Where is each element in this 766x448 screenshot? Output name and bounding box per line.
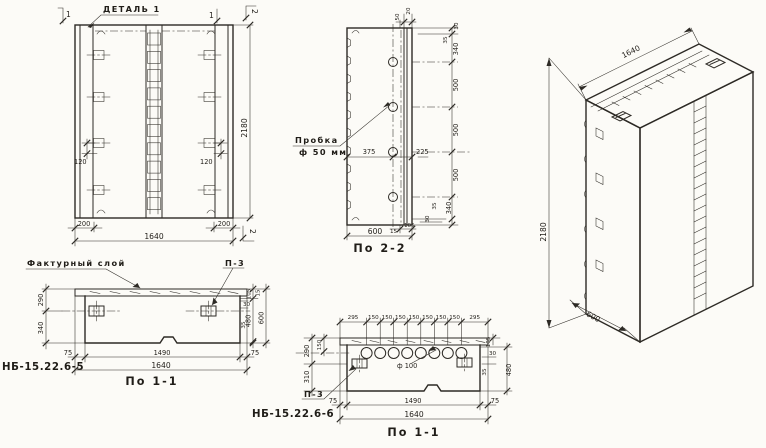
sec5-plates bbox=[62, 301, 250, 321]
sec5-mark: НБ-15.22.6-5 bbox=[2, 362, 84, 373]
plug-label-line1: Пробка bbox=[295, 135, 339, 145]
sec5-width: 1640 bbox=[151, 361, 170, 370]
sec5-dim-15: 15 bbox=[256, 289, 262, 297]
section-2-2-outline bbox=[347, 24, 412, 229]
front-panel-outline bbox=[75, 25, 233, 218]
chain-340-top: 340 bbox=[452, 43, 460, 56]
iso-box bbox=[586, 44, 753, 342]
chain-30-bottom: 30 bbox=[425, 215, 431, 223]
dim-front-height: 2180 bbox=[240, 118, 249, 137]
dim-loop-left: 120 bbox=[74, 158, 87, 166]
sec6-chain-8: 295 bbox=[469, 315, 480, 321]
sec6-chain-5: 150 bbox=[422, 315, 433, 321]
sec5-caption: По 1-1 bbox=[125, 375, 178, 388]
facing-layer-label: Фактурный слой bbox=[27, 258, 126, 268]
sec6-inner: 1490 bbox=[405, 397, 422, 405]
plug-label-line2: ф 50 мм bbox=[299, 147, 347, 157]
sec6-chain-1: 150 bbox=[368, 315, 379, 321]
chain-500-a: 500 bbox=[452, 79, 460, 92]
sec6-mark: НБ-15.22.6-6 bbox=[252, 409, 334, 420]
sec6-dim-310: 310 bbox=[303, 371, 311, 384]
dim-section-width: 600 bbox=[368, 227, 383, 236]
dim-bottom-a: 15 bbox=[390, 229, 398, 235]
sec5-dim-290: 290 bbox=[37, 294, 45, 307]
sec6-hole-label: ф 100 bbox=[397, 362, 417, 370]
sec6-width: 1640 bbox=[404, 410, 423, 419]
sec5-edge-right: 75 bbox=[251, 349, 259, 357]
sec5-dim-340: 340 bbox=[37, 322, 45, 335]
sec6-chain-2: 150 bbox=[382, 315, 393, 321]
section-2-2-caption: По 2-2 bbox=[353, 242, 406, 255]
sec6-chain-0: 295 bbox=[348, 315, 359, 321]
chain-340-bottom: 340 bbox=[445, 202, 453, 215]
sec6-top-chain: 295 150 150 150 150 150 150 150 295 bbox=[337, 315, 491, 345]
sec6-dim-150: 150 bbox=[317, 339, 323, 350]
iso-dim-height: 2180 bbox=[539, 222, 548, 241]
section-flag-1-right: 1 bbox=[209, 11, 214, 20]
iso-dim-depth: 600 bbox=[585, 309, 602, 324]
section-1-1-left-view: Фактурный слой П-3 290 340 105 15 480 60… bbox=[2, 258, 270, 388]
dim-hole-left: 375 bbox=[363, 148, 376, 156]
dim-top-a: 50 bbox=[395, 13, 401, 21]
sec5-bottom-dims: 75 1490 75 1640 НБ-15.22.6-5 По 1-1 bbox=[2, 296, 259, 388]
dim-front-width: 1640 bbox=[144, 232, 163, 241]
sec6-chain-3: 150 bbox=[395, 315, 406, 321]
drawing-canvas: 120 120 ДЕТАЛЬ 1 1 1 2 2 2180 200 200 16… bbox=[0, 0, 766, 448]
iso-side-holes bbox=[585, 120, 604, 300]
sec6-edge-right: 75 bbox=[491, 397, 499, 405]
sec5-edge-left: 75 bbox=[64, 349, 72, 357]
sec6-dim-105: 105 bbox=[486, 336, 492, 347]
sec6-plate-label: П-3 bbox=[304, 389, 324, 399]
plug-callout: Пробка ф 50 мм bbox=[293, 102, 390, 157]
sec5-right-dims: 105 15 480 600 30 35 bbox=[240, 284, 270, 348]
section-2-2-right-chain: 30 35 340 500 500 500 340 35 30 bbox=[412, 22, 470, 228]
section-1-1-right-view: 295 150 150 150 150 150 150 150 295 ф 10… bbox=[252, 315, 513, 439]
sec5-plate-label: П-3 bbox=[225, 258, 245, 268]
dim-loop-right: 120 bbox=[200, 158, 213, 166]
sec6-dim-30: 30 bbox=[489, 351, 497, 357]
dim-top-b: 20 bbox=[406, 7, 412, 15]
sec6-chain-6: 150 bbox=[436, 315, 447, 321]
section-2-2-bottom-dims: 15 105 600 По 2-2 bbox=[344, 223, 416, 255]
section-2-2-top-dims: 50 20 bbox=[395, 7, 416, 28]
section-2-2-hole-dims: 375 225 bbox=[344, 148, 429, 160]
blueprint-sheet: 120 120 ДЕТАЛЬ 1 1 1 2 2 2180 200 200 16… bbox=[0, 0, 766, 448]
section-flag-2-top: 2 bbox=[250, 9, 259, 14]
chain-35-bottom: 35 bbox=[432, 202, 438, 210]
iso-groove-column bbox=[694, 95, 706, 315]
sec5-dim-105: 105 bbox=[247, 288, 253, 299]
front-view: 120 120 ДЕТАЛЬ 1 1 1 2 2 2180 200 200 16… bbox=[58, 4, 259, 246]
dim-edge-left: 200 bbox=[78, 220, 91, 228]
sec6-dim-35: 35 bbox=[482, 368, 488, 376]
sec6-caption: По 1-1 bbox=[387, 426, 440, 439]
dim-edge-right: 200 bbox=[218, 220, 231, 228]
sec6-edge-left: 75 bbox=[329, 397, 337, 405]
chain-30-top: 30 bbox=[454, 22, 460, 30]
sec6-dim-480: 480 bbox=[505, 364, 513, 377]
sec6-chain-4: 150 bbox=[409, 315, 420, 321]
sec5-left-dims: 290 340 bbox=[37, 284, 85, 349]
sec5-dim-35: 35 bbox=[241, 321, 247, 329]
facing-layer-callout: Фактурный слой bbox=[26, 258, 140, 288]
sec6-right-dims: 105 30 35 480 bbox=[480, 334, 513, 395]
iso-dims: 1640 2180 600 bbox=[539, 28, 699, 343]
chain-500-b: 500 bbox=[452, 124, 460, 137]
sec6-chain-7: 150 bbox=[449, 315, 460, 321]
sec6-dim-290: 290 bbox=[303, 345, 311, 358]
chain-35-top: 35 bbox=[443, 36, 449, 44]
dim-bottom-b: 105 bbox=[404, 223, 415, 229]
chain-500-c: 500 bbox=[452, 169, 460, 182]
front-channel-ladder bbox=[148, 33, 161, 210]
sec5-dim-600: 600 bbox=[258, 312, 266, 325]
section-marks: 1 1 2 2 bbox=[58, 6, 259, 241]
section-flag-1-left: 1 bbox=[66, 10, 71, 19]
iso-view: 1640 2180 600 bbox=[539, 28, 753, 343]
sec5-inner: 1490 bbox=[154, 349, 171, 357]
section-flag-2-bottom: 2 bbox=[248, 229, 257, 234]
section-2-2-view: Пробка ф 50 мм 50 20 375 225 30 35 340 5… bbox=[293, 7, 470, 255]
detail-callout-label: ДЕТАЛЬ 1 bbox=[103, 4, 161, 14]
